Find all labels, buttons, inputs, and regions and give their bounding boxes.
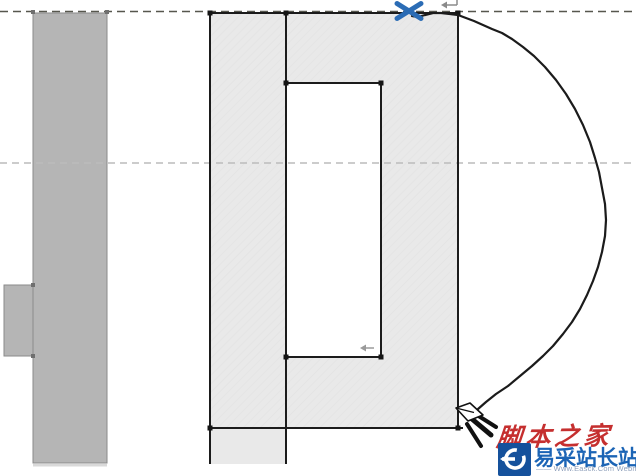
vertex-handle[interactable] (379, 355, 384, 360)
left-wall-bump[interactable] (4, 285, 33, 356)
opening-fill[interactable] (286, 83, 381, 357)
vertex-handle[interactable] (284, 11, 289, 16)
left-wall[interactable] (33, 13, 107, 463)
vertex-handle[interactable] (456, 426, 461, 431)
vertex-handle[interactable] (379, 81, 384, 86)
vertex-handle[interactable] (208, 426, 213, 431)
vertex-handle[interactable] (208, 11, 213, 16)
vertex-handle[interactable] (284, 355, 289, 360)
wall-handle[interactable] (31, 10, 35, 14)
drawing-viewport: 脚本之家 易采站长站 —— Www.Easck.Com Webmaster (0, 0, 636, 476)
vertex-handle[interactable] (284, 81, 289, 86)
flip-arrow-icon[interactable] (441, 2, 447, 9)
wall-handle[interactable] (31, 283, 35, 287)
wall-handle[interactable] (31, 354, 35, 358)
wall-handle[interactable] (105, 10, 109, 14)
left-wall-shadow (33, 464, 107, 467)
drawing-canvas[interactable] (0, 0, 636, 476)
wall-lower-extension-fill (210, 428, 286, 464)
